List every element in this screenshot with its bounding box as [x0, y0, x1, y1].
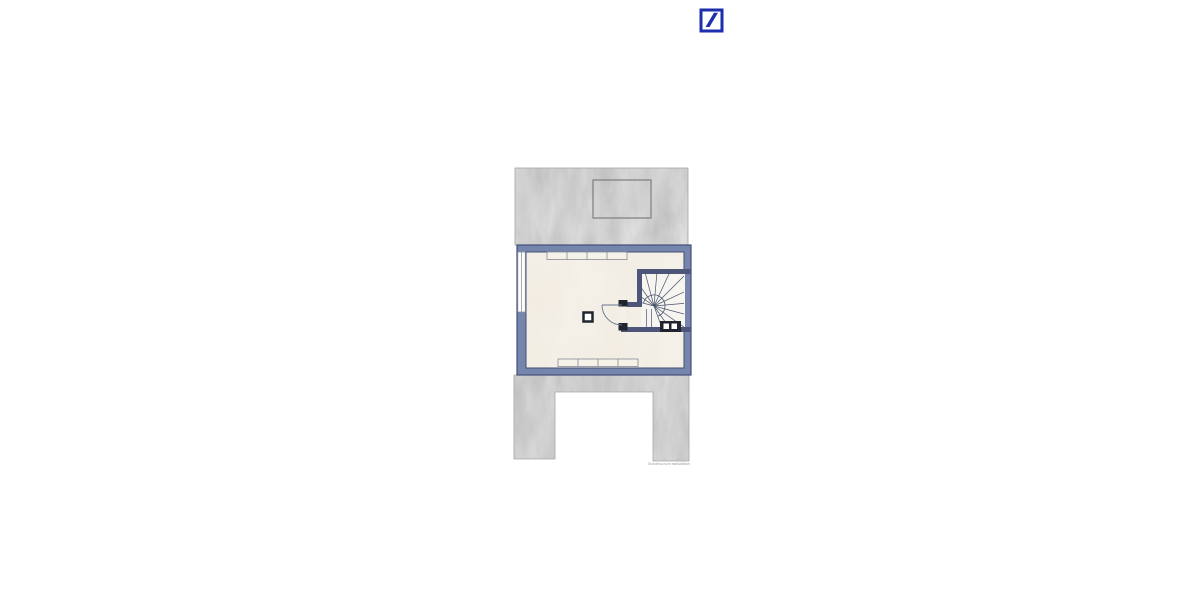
floor-plan-canvas: Grundriss nicht maßstäblich	[0, 0, 1200, 600]
left-wall-window	[518, 252, 526, 312]
top-wardrobe-strip	[547, 252, 627, 260]
door-opening	[620, 306, 627, 323]
page: Grundriss nicht maßstäblich	[0, 0, 1200, 600]
door-jamb-bottom	[619, 323, 628, 331]
attic-room	[517, 245, 709, 375]
door-jamb-top	[619, 300, 628, 307]
deutsche-bank-logo-icon	[701, 10, 722, 31]
chimney-column-icon	[584, 313, 593, 322]
bottom-wardrobe-strip	[558, 359, 638, 367]
chimney-block-icon	[660, 321, 681, 332]
watermark-text: Grundriss nicht maßstäblich	[648, 462, 690, 466]
